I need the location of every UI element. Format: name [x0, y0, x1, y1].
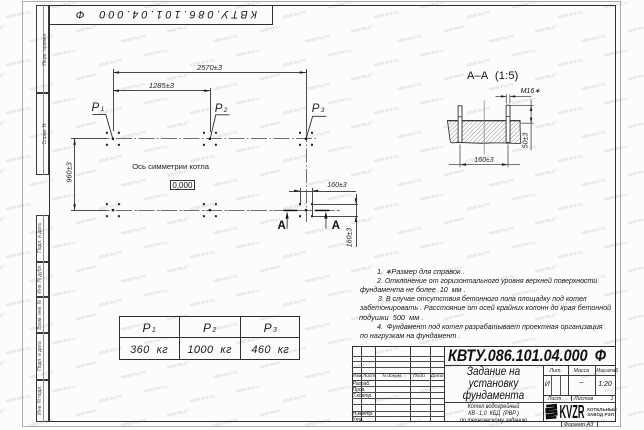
svg-text:KVZR: KVZR [560, 402, 585, 422]
svg-text:КВТУ.086.101.04.000 Ф: КВТУ.086.101.04.000 Ф [448, 347, 606, 365]
